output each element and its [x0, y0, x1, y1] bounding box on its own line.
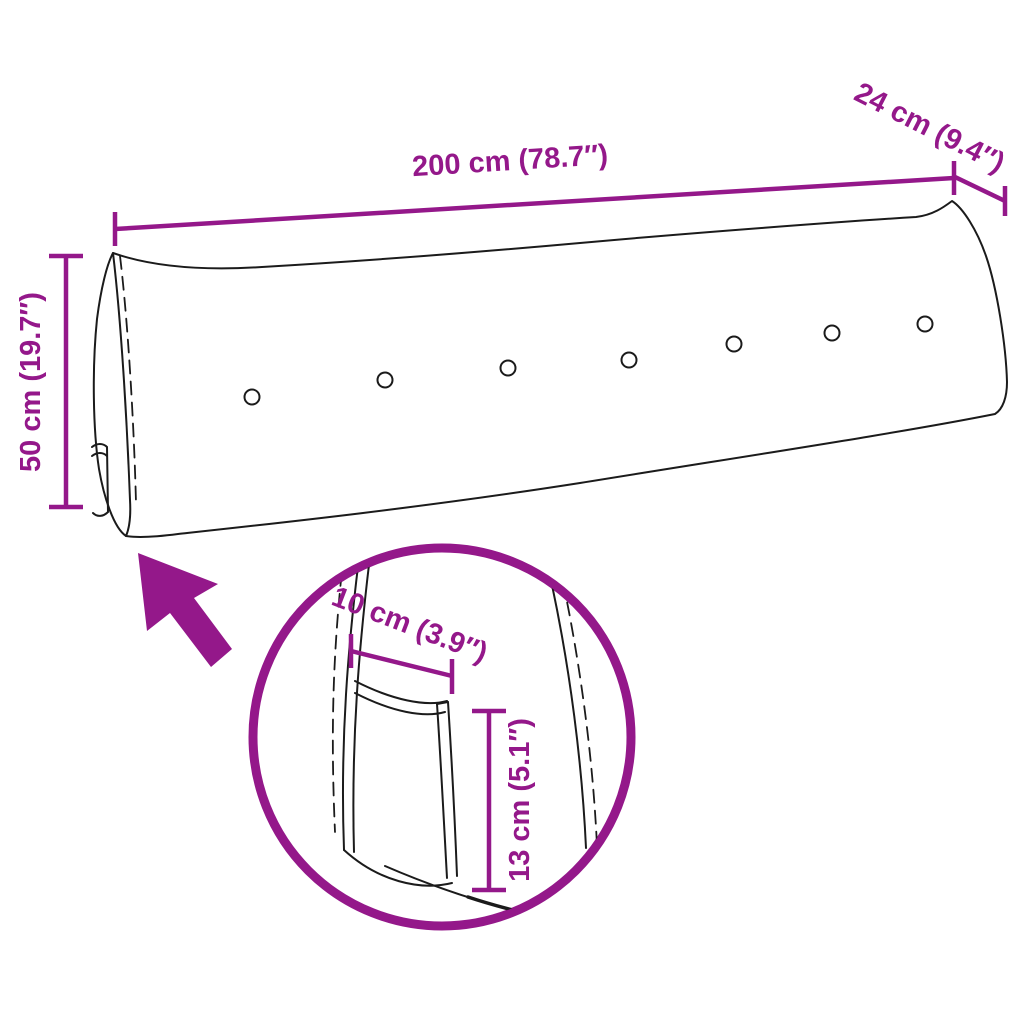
dimension-width-line	[115, 178, 954, 229]
tufting-button	[245, 390, 260, 405]
dimension-depth: 24 cm (9.4″)	[849, 77, 1009, 216]
dimension-pocket-height-label: 13 cm (5.1″)	[504, 718, 536, 882]
tufting-button	[918, 317, 933, 332]
dimension-height: 50 cm (19.7″)	[15, 256, 83, 507]
dimension-depth-line	[955, 177, 1005, 201]
cushion-outline	[94, 201, 1007, 537]
dimension-depth-label: 24 cm (9.4″)	[849, 77, 1009, 180]
diagram-svg: 200 cm (78.7″) 24 cm (9.4″) 50 cm (19.7″…	[0, 0, 1024, 1024]
tufting-button	[825, 326, 840, 341]
pocket-detail-magnifier: 10 cm (3.9″) 13 cm (5.1″)	[253, 548, 631, 926]
tufting-button	[501, 361, 516, 376]
magnifier-circle-icon	[253, 548, 631, 926]
tufting-button	[727, 337, 742, 352]
dimension-height-label: 50 cm (19.7″)	[15, 292, 47, 472]
dimension-diagram: 200 cm (78.7″) 24 cm (9.4″) 50 cm (19.7″…	[0, 0, 1024, 1024]
tufting-button	[378, 373, 393, 388]
dimension-width-label: 200 cm (78.7″)	[411, 139, 609, 183]
tufting-button	[622, 353, 637, 368]
cushion-drawing	[92, 201, 1007, 537]
arrow-icon	[138, 553, 232, 667]
